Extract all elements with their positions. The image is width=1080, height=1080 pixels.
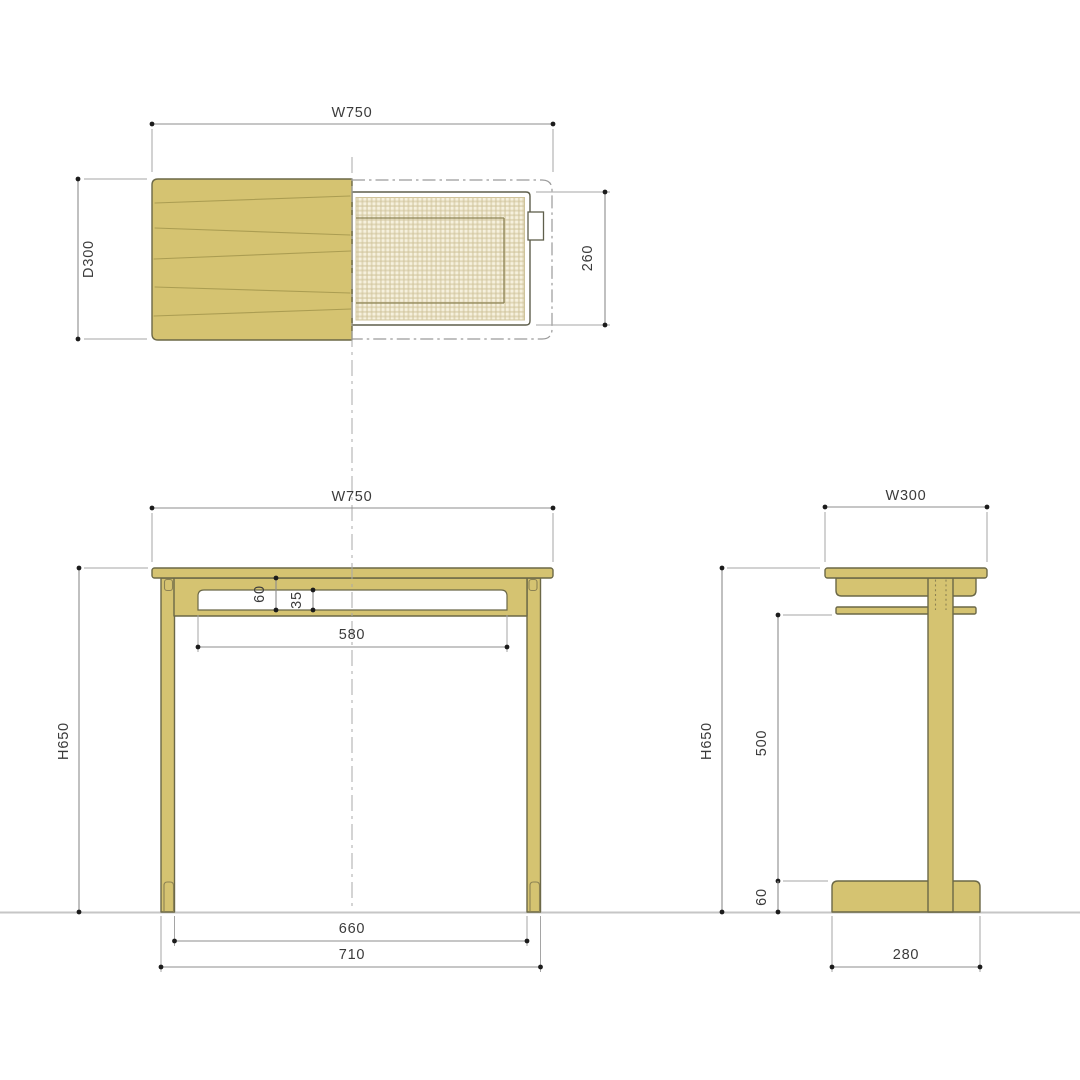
dim-label: D300 xyxy=(81,240,97,278)
dim-front-opening-width: 580 xyxy=(196,615,510,652)
dim-side-width: W300 xyxy=(823,488,990,562)
dim-label: 260 xyxy=(580,245,596,272)
dim-label: W750 xyxy=(331,105,372,121)
side-rail xyxy=(836,607,976,614)
side-elevation xyxy=(825,568,987,912)
tabletop-side xyxy=(825,568,987,578)
dim-label: 660 xyxy=(339,921,366,937)
dim-label: 60 xyxy=(754,888,770,906)
front-leg-right xyxy=(527,578,541,912)
dim-label: 280 xyxy=(893,947,920,963)
dim-label: 35 xyxy=(289,591,305,609)
side-drawer-box xyxy=(836,578,976,596)
dim-label: W300 xyxy=(885,488,926,504)
drawer-mesh-bottom xyxy=(356,198,525,321)
dim-front-inner-leg-span: 660 xyxy=(172,916,529,946)
side-foot xyxy=(832,881,980,912)
front-leg-left xyxy=(161,578,175,912)
dim-front-height: H650 xyxy=(56,566,148,915)
dim-side-foot-depth: 280 xyxy=(830,916,983,972)
dim-label: 500 xyxy=(754,730,770,757)
drawer-handle xyxy=(528,212,544,240)
tabletop-plan xyxy=(152,179,352,340)
dim-label: 60 xyxy=(252,585,268,603)
dim-plan-depth: D300 xyxy=(76,177,147,342)
dim-label: 710 xyxy=(339,947,366,963)
dim-plan-drawer-depth: 260 xyxy=(536,190,610,328)
dim-label: H650 xyxy=(699,722,715,760)
dim-label: H650 xyxy=(56,722,72,760)
dim-side-under-clearance: 500 xyxy=(754,613,832,884)
dim-side-foot-height: 60 xyxy=(754,881,780,914)
side-leg xyxy=(928,578,953,912)
technical-drawing-canvas: W750 D300 260 W750 H650 60 35 5 xyxy=(0,0,1080,1080)
dim-label: 580 xyxy=(339,627,366,643)
dim-front-width: W750 xyxy=(150,489,556,562)
dim-label: W750 xyxy=(331,489,372,505)
